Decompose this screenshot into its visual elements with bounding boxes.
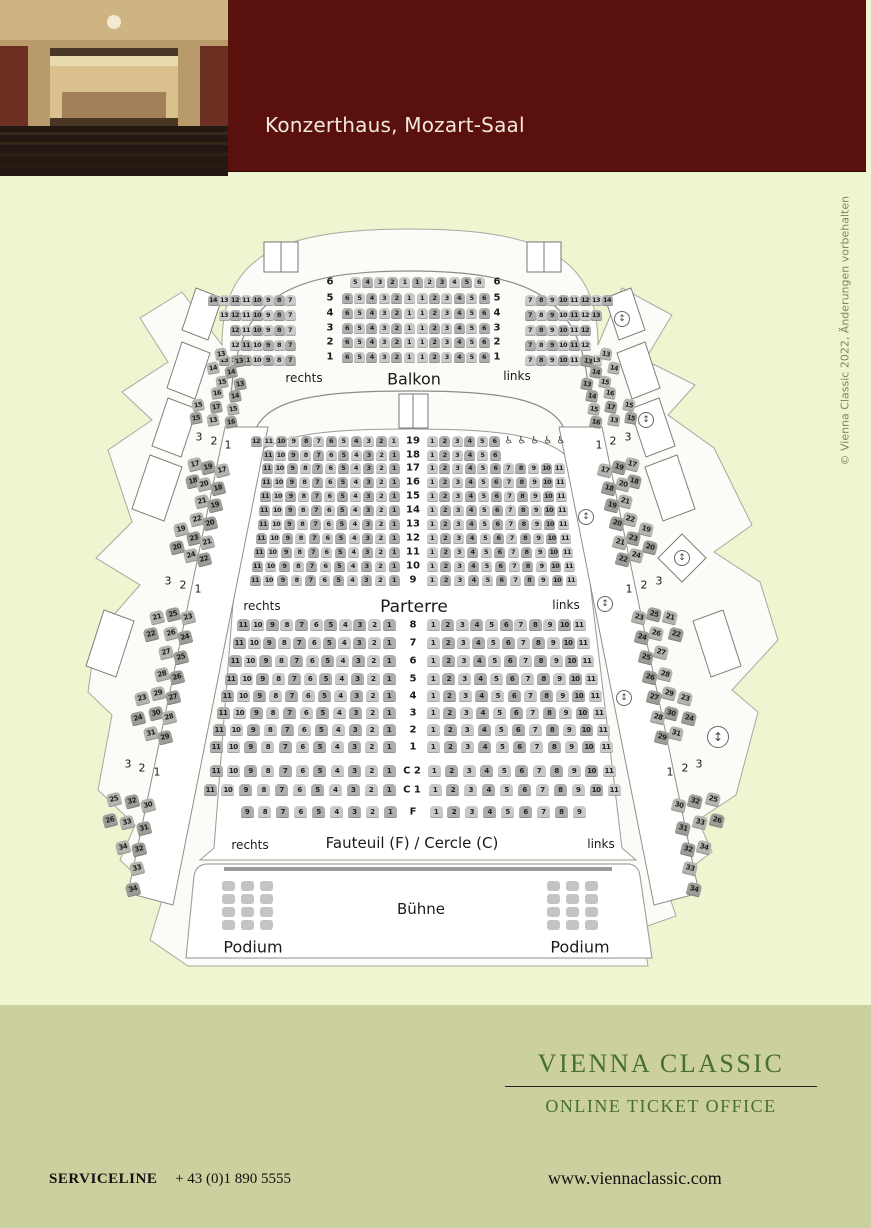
seat[interactable]: 2 <box>391 323 402 334</box>
seat[interactable]: 3 <box>379 337 390 348</box>
seat[interactable]: 1 <box>427 637 440 649</box>
seat[interactable]: 17 <box>209 400 223 414</box>
seat[interactable]: 1 <box>429 784 442 796</box>
seat[interactable]: 6 <box>302 690 315 702</box>
seat[interactable]: 2 <box>375 575 386 586</box>
seat[interactable]: 29 <box>157 729 174 745</box>
seat[interactable]: 10 <box>558 619 571 631</box>
seat[interactable]: 11 <box>569 310 580 321</box>
seat[interactable]: 5 <box>312 806 325 818</box>
seat[interactable]: 26 <box>169 669 186 685</box>
seat[interactable]: 9 <box>241 806 254 818</box>
seat[interactable]: 4 <box>366 293 377 304</box>
seat[interactable]: 3 <box>436 277 447 288</box>
seat[interactable]: 5 <box>354 337 365 348</box>
seat[interactable]: 22 <box>143 626 160 642</box>
seat[interactable]: 24 <box>177 629 194 645</box>
seat[interactable]: 1 <box>428 765 441 777</box>
seat[interactable]: 10 <box>244 655 257 667</box>
seat[interactable]: 13 <box>591 310 602 321</box>
seat[interactable]: 10 <box>582 741 595 753</box>
seat[interactable]: 9 <box>535 547 546 558</box>
seat[interactable]: 4 <box>339 619 352 631</box>
seat[interactable]: 2 <box>439 450 450 461</box>
seat[interactable]: 10 <box>590 784 603 796</box>
seat[interactable]: 3 <box>441 293 452 304</box>
seat[interactable]: 9 <box>285 505 296 516</box>
seat[interactable]: 11 <box>221 690 234 702</box>
seat[interactable]: 4 <box>470 619 483 631</box>
seat[interactable]: 10 <box>252 340 263 351</box>
seat[interactable]: 8 <box>546 724 559 736</box>
seat[interactable]: 2 <box>443 707 456 719</box>
seat[interactable]: 10 <box>558 310 569 321</box>
seat[interactable]: 10 <box>544 505 555 516</box>
seat[interactable]: 5 <box>480 533 491 544</box>
seat[interactable]: 17 <box>604 400 618 414</box>
seat[interactable]: 10 <box>543 491 554 502</box>
seat[interactable]: 10 <box>542 477 553 488</box>
seat[interactable]: 13 <box>206 413 220 427</box>
seat[interactable]: 2 <box>440 519 451 530</box>
seat[interactable]: 3 <box>452 477 463 488</box>
seat[interactable]: 4 <box>478 741 491 753</box>
seat[interactable]: 2 <box>444 741 457 753</box>
seat[interactable]: 14 <box>208 295 219 306</box>
seat[interactable]: 6 <box>296 741 309 753</box>
seat[interactable]: 8 <box>274 295 285 306</box>
seat[interactable]: 10 <box>263 575 274 586</box>
seat[interactable]: 1 <box>417 293 428 304</box>
seat[interactable]: 7 <box>281 724 294 736</box>
seat[interactable]: 5 <box>477 463 488 474</box>
seat[interactable]: 12 <box>230 340 241 351</box>
seat[interactable]: 1 <box>383 619 396 631</box>
seat[interactable]: 10 <box>558 340 569 351</box>
seat[interactable]: 3 <box>456 619 469 631</box>
seat[interactable]: 2 <box>429 293 440 304</box>
seat[interactable]: 7 <box>536 784 549 796</box>
seat[interactable]: 8 <box>261 741 274 753</box>
seat[interactable]: 6 <box>490 450 501 461</box>
seat[interactable]: 2 <box>365 741 378 753</box>
seat[interactable]: 7 <box>275 784 288 796</box>
seat[interactable]: 2 <box>444 724 457 736</box>
seat[interactable]: 7 <box>313 436 324 447</box>
seat[interactable]: 3 <box>463 765 476 777</box>
seat[interactable]: 3 <box>464 784 477 796</box>
seat[interactable]: 6 <box>494 547 505 558</box>
seat[interactable]: 1 <box>383 784 396 796</box>
seat[interactable]: 9 <box>547 355 558 366</box>
seat[interactable] <box>241 907 254 917</box>
seat[interactable] <box>566 894 579 904</box>
seat[interactable]: 4 <box>468 561 479 572</box>
seat[interactable]: 9 <box>288 450 299 461</box>
seat[interactable]: 4 <box>348 547 359 558</box>
seat[interactable]: 4 <box>331 765 344 777</box>
seat[interactable] <box>222 920 235 930</box>
seat[interactable] <box>260 920 273 930</box>
seat[interactable]: 9 <box>244 741 257 753</box>
seat[interactable]: 5 <box>316 707 329 719</box>
seat[interactable]: 1 <box>383 637 396 649</box>
seat[interactable]: 1 <box>404 337 415 348</box>
seat[interactable]: 5 <box>334 561 345 572</box>
seat[interactable]: 5 <box>338 436 349 447</box>
seat[interactable]: 1 <box>389 575 400 586</box>
seat[interactable]: 7 <box>283 707 296 719</box>
seat[interactable]: 11 <box>608 784 621 796</box>
seat[interactable]: 8 <box>532 637 545 649</box>
seat[interactable]: 9 <box>547 310 558 321</box>
seat[interactable]: 4 <box>332 724 345 736</box>
seat[interactable]: 2 <box>429 352 440 363</box>
seat[interactable] <box>585 920 598 930</box>
seat[interactable]: 7 <box>505 505 516 516</box>
seat[interactable]: 1 <box>427 655 440 667</box>
seat[interactable]: 6 <box>342 352 353 363</box>
seat[interactable]: 1 <box>417 337 428 348</box>
seat[interactable]: 7 <box>288 673 301 685</box>
seat[interactable]: 5 <box>313 765 326 777</box>
seat[interactable]: 10 <box>558 325 569 336</box>
seat[interactable]: 9 <box>531 505 542 516</box>
seat[interactable]: 4 <box>464 450 475 461</box>
seat[interactable]: 6 <box>325 477 336 488</box>
seat[interactable]: 1 <box>427 436 438 447</box>
seat[interactable]: 7 <box>285 340 296 351</box>
seat[interactable]: 11 <box>554 463 565 474</box>
seat[interactable]: 11 <box>566 575 577 586</box>
seat[interactable]: 5 <box>498 765 511 777</box>
seat[interactable]: 4 <box>464 436 475 447</box>
seat[interactable]: 1 <box>389 533 400 544</box>
seat[interactable]: 31 <box>136 820 153 836</box>
seat[interactable]: 9 <box>529 477 540 488</box>
seat[interactable]: 7 <box>524 690 537 702</box>
seat[interactable]: 9 <box>538 575 549 586</box>
seat[interactable]: 2 <box>366 806 379 818</box>
seat[interactable]: 6 <box>342 323 353 334</box>
seat[interactable]: 7 <box>537 806 550 818</box>
seat[interactable]: 18 <box>210 480 227 496</box>
seat[interactable]: 1 <box>404 323 415 334</box>
seat[interactable]: 4 <box>465 491 476 502</box>
seat[interactable]: 3 <box>347 784 360 796</box>
seat[interactable]: 22 <box>196 551 213 567</box>
seat[interactable]: 2 <box>376 491 387 502</box>
seat[interactable]: 9 <box>547 325 558 336</box>
seat[interactable]: 1 <box>412 277 423 288</box>
seat[interactable]: 6 <box>492 505 503 516</box>
seat[interactable]: 10 <box>248 637 261 649</box>
seat[interactable]: 2 <box>440 547 451 558</box>
seat[interactable]: 5 <box>350 277 361 288</box>
seat[interactable]: 19 <box>207 497 224 513</box>
seat[interactable]: 5 <box>311 784 324 796</box>
seat[interactable]: 8 <box>295 533 306 544</box>
seat[interactable]: 9 <box>263 340 274 351</box>
seat[interactable]: 5 <box>488 655 501 667</box>
seat[interactable]: 11 <box>229 655 242 667</box>
seat[interactable]: 5 <box>466 293 477 304</box>
seat[interactable]: 6 <box>495 561 506 572</box>
seat[interactable]: 3 <box>352 655 365 667</box>
seat[interactable]: 1 <box>389 505 400 516</box>
seat[interactable]: 12 <box>230 310 241 321</box>
seat[interactable] <box>222 881 235 891</box>
seat[interactable] <box>241 881 254 891</box>
seat[interactable]: 2 <box>365 784 378 796</box>
seat[interactable]: 2 <box>447 806 460 818</box>
seat[interactable]: 2 <box>375 547 386 558</box>
seat[interactable]: 2 <box>387 277 398 288</box>
seat[interactable]: 2 <box>429 308 440 319</box>
seat[interactable]: 4 <box>483 806 496 818</box>
seat[interactable]: 4 <box>465 477 476 488</box>
seat[interactable]: 11 <box>256 533 267 544</box>
seat[interactable] <box>547 920 560 930</box>
seat[interactable]: 8 <box>294 547 305 558</box>
seat[interactable]: 4 <box>366 323 377 334</box>
seat[interactable]: 3 <box>363 477 374 488</box>
seat[interactable]: 6 <box>319 575 330 586</box>
seat[interactable]: 2 <box>424 277 435 288</box>
seat[interactable]: 9 <box>563 724 576 736</box>
seat[interactable]: 4 <box>480 765 493 777</box>
seat[interactable]: 32 <box>124 793 141 809</box>
seat[interactable]: 13 <box>580 377 594 391</box>
seat[interactable]: 14 <box>206 361 220 375</box>
seat[interactable]: 2 <box>366 707 379 719</box>
seat[interactable]: 4 <box>347 575 358 586</box>
seat[interactable]: 5 <box>500 784 513 796</box>
seat[interactable]: 6 <box>502 637 515 649</box>
seat[interactable]: 33 <box>119 814 136 830</box>
seat[interactable]: 6 <box>300 707 313 719</box>
seat[interactable]: 10 <box>552 575 563 586</box>
seat[interactable]: 2 <box>375 561 386 572</box>
seat[interactable]: 10 <box>546 533 557 544</box>
seat[interactable]: 2 <box>376 505 387 516</box>
seat[interactable]: 6 <box>324 505 335 516</box>
seat[interactable]: 9 <box>543 619 556 631</box>
seat[interactable]: 8 <box>257 784 270 796</box>
seat[interactable]: 3 <box>348 806 361 818</box>
seat[interactable]: 9 <box>547 295 558 306</box>
seat[interactable]: 6 <box>322 533 333 544</box>
seat[interactable]: 7 <box>509 561 520 572</box>
seat[interactable]: 6 <box>500 619 513 631</box>
seat[interactable]: 2 <box>375 533 386 544</box>
seat[interactable]: 11 <box>569 295 580 306</box>
seat[interactable]: 11 <box>557 505 568 516</box>
seat[interactable]: 5 <box>491 690 504 702</box>
seat[interactable] <box>585 894 598 904</box>
seat[interactable]: 7 <box>306 561 317 572</box>
seat[interactable]: 9 <box>263 310 274 321</box>
seat[interactable]: 5 <box>338 463 349 474</box>
seat[interactable]: 8 <box>278 637 291 649</box>
seat[interactable]: 5 <box>354 293 365 304</box>
seat[interactable]: 16 <box>603 386 617 400</box>
seat[interactable]: 10 <box>252 325 263 336</box>
seat[interactable]: 4 <box>329 784 342 796</box>
seat[interactable]: 11 <box>577 637 590 649</box>
seat[interactable]: 10 <box>541 463 552 474</box>
seat[interactable]: 25 <box>165 606 182 622</box>
seat[interactable]: 8 <box>280 619 293 631</box>
seat[interactable]: 10 <box>565 655 578 667</box>
seat[interactable]: 8 <box>274 325 285 336</box>
seat[interactable]: 4 <box>366 308 377 319</box>
seat[interactable]: 10 <box>269 533 280 544</box>
seat[interactable]: 8 <box>537 673 550 685</box>
seat[interactable]: 3 <box>457 655 470 667</box>
seat[interactable]: 2 <box>439 436 450 447</box>
seat[interactable]: 13 <box>214 347 228 361</box>
seat[interactable]: 6 <box>298 724 311 736</box>
seat[interactable]: 9 <box>239 784 252 796</box>
seat[interactable]: 8 <box>543 707 556 719</box>
seat[interactable]: 5 <box>481 547 492 558</box>
seat[interactable]: 9 <box>244 765 257 777</box>
seat[interactable]: 23 <box>134 690 151 706</box>
seat[interactable]: 5 <box>318 690 331 702</box>
seat[interactable]: 6 <box>496 575 507 586</box>
seat[interactable]: 16 <box>224 415 238 429</box>
seat[interactable]: 2 <box>376 477 387 488</box>
seat[interactable]: 1 <box>427 505 438 516</box>
seat[interactable]: 5 <box>485 619 498 631</box>
seat[interactable]: 8 <box>536 310 547 321</box>
seat[interactable]: 7 <box>313 450 324 461</box>
seat[interactable]: 10 <box>230 724 243 736</box>
seat[interactable]: 3 <box>363 450 374 461</box>
seat[interactable]: 5 <box>479 505 490 516</box>
seat[interactable]: 4 <box>482 784 495 796</box>
seat[interactable]: 16 <box>210 386 224 400</box>
seat[interactable]: 7 <box>504 491 515 502</box>
seat[interactable] <box>241 894 254 904</box>
seat[interactable]: 1 <box>383 724 396 736</box>
seat[interactable]: 32 <box>131 841 148 857</box>
seat[interactable]: 2 <box>440 561 451 572</box>
seat[interactable]: 1 <box>389 463 400 474</box>
seat[interactable]: 3 <box>465 806 478 818</box>
seat[interactable]: 9 <box>556 690 569 702</box>
seat[interactable]: 1 <box>389 450 400 461</box>
seat[interactable]: 4 <box>454 293 465 304</box>
seat[interactable]: 3 <box>453 533 464 544</box>
seat[interactable]: 7 <box>312 463 323 474</box>
seat[interactable]: 9 <box>547 340 558 351</box>
seat[interactable]: 6 <box>491 477 502 488</box>
seat[interactable]: 9 <box>277 575 288 586</box>
seat[interactable]: 5 <box>338 450 349 461</box>
seat[interactable]: 5 <box>315 724 328 736</box>
seat[interactable]: 2 <box>391 308 402 319</box>
seat[interactable]: 11 <box>241 340 252 351</box>
seat[interactable]: 10 <box>272 505 283 516</box>
seat[interactable]: 7 <box>279 765 292 777</box>
seat[interactable]: 1 <box>389 547 400 558</box>
seat[interactable]: 11 <box>262 463 273 474</box>
seat[interactable]: 11 <box>564 561 575 572</box>
seat[interactable]: 8 <box>261 765 274 777</box>
seat[interactable]: 3 <box>363 491 374 502</box>
seat[interactable]: 3 <box>363 436 374 447</box>
seat[interactable]: 10 <box>271 519 282 530</box>
seat[interactable]: 6 <box>308 637 321 649</box>
seat[interactable]: 1 <box>430 806 443 818</box>
seat[interactable]: 11 <box>213 724 226 736</box>
seat[interactable]: 8 <box>275 655 288 667</box>
seat[interactable]: 3 <box>362 519 373 530</box>
seat[interactable]: 7 <box>293 637 306 649</box>
seat[interactable] <box>547 894 560 904</box>
seat[interactable]: 6 <box>342 293 353 304</box>
seat[interactable]: 1 <box>427 533 438 544</box>
seat[interactable]: 4 <box>335 673 348 685</box>
seat[interactable]: 2 <box>368 619 381 631</box>
seat[interactable]: 4 <box>330 806 343 818</box>
seat[interactable]: 10 <box>272 491 283 502</box>
seat[interactable]: 33 <box>129 860 146 876</box>
seat[interactable]: 1 <box>417 308 428 319</box>
seat[interactable]: 9 <box>536 561 547 572</box>
seat[interactable]: 7 <box>312 477 323 488</box>
seat[interactable]: 2 <box>442 655 455 667</box>
seat[interactable]: 3 <box>363 463 374 474</box>
seat[interactable]: 5 <box>333 575 344 586</box>
seat[interactable]: 3 <box>441 352 452 363</box>
seat[interactable]: 7 <box>529 724 542 736</box>
seat[interactable]: 2 <box>391 293 402 304</box>
seat[interactable]: 7 <box>525 295 536 306</box>
seat[interactable] <box>547 881 560 891</box>
seat[interactable]: 3 <box>441 337 452 348</box>
seat[interactable]: 2 <box>367 655 380 667</box>
seat[interactable]: 4 <box>349 533 360 544</box>
seat[interactable]: 6 <box>512 724 525 736</box>
seat[interactable]: 8 <box>269 690 282 702</box>
seat[interactable]: 1 <box>389 519 400 530</box>
seat[interactable]: 7 <box>276 806 289 818</box>
seat[interactable]: 5 <box>477 436 488 447</box>
seat[interactable]: 3 <box>349 707 362 719</box>
seat[interactable]: 11 <box>210 765 223 777</box>
seat[interactable]: 7 <box>533 765 546 777</box>
seat[interactable]: 11 <box>233 637 246 649</box>
seat[interactable]: 1 <box>389 477 400 488</box>
seat[interactable]: 10 <box>544 519 555 530</box>
seat[interactable]: 3 <box>460 707 473 719</box>
seat[interactable]: 3 <box>379 352 390 363</box>
seat[interactable]: 25 <box>173 649 190 665</box>
seat[interactable]: 10 <box>233 707 246 719</box>
seat[interactable]: 1 <box>389 561 400 572</box>
seat[interactable]: 2 <box>440 505 451 516</box>
seat[interactable]: 1 <box>417 323 428 334</box>
seat[interactable]: 2 <box>440 533 451 544</box>
seat[interactable]: 4 <box>473 655 486 667</box>
seat[interactable]: 8 <box>299 477 310 488</box>
seat[interactable]: 8 <box>540 690 553 702</box>
seat[interactable]: 4 <box>350 491 361 502</box>
seat[interactable]: 5 <box>323 637 336 649</box>
